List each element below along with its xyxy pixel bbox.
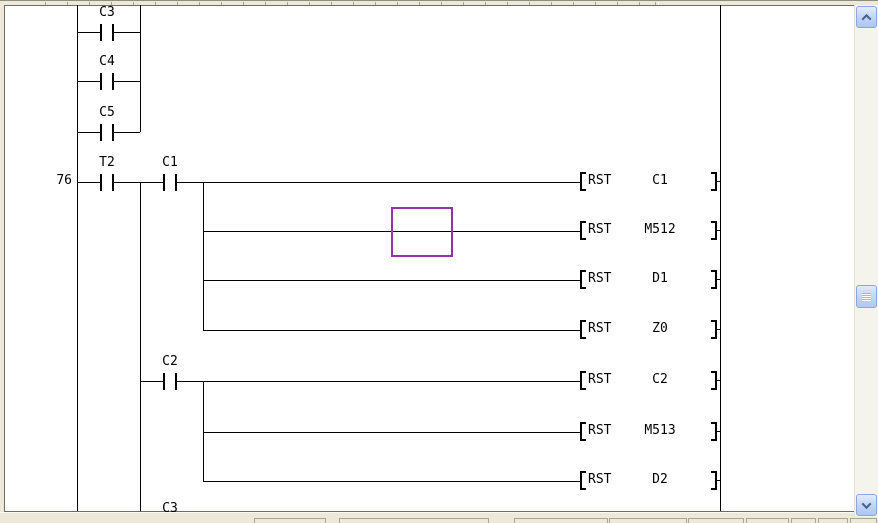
coil-rst-c2[interactable]: RSTC2: [580, 370, 721, 392]
thumb-grip-icon: [862, 293, 871, 301]
coil-rail-stub: [717, 279, 721, 280]
coil-rail-stub: [717, 431, 721, 432]
left-bracket: [580, 221, 586, 240]
instruction-mnemonic: RST: [588, 223, 611, 236]
ladder-diagram: C3C4C5T2C1C2RSTC1RSTM512RSTD1RSTZ0RSTC2R…: [0, 0, 853, 512]
instruction-mnemonic: RST: [588, 272, 611, 285]
status-pane: [514, 518, 608, 523]
status-pane: [850, 518, 877, 523]
contact-c2[interactable]: [163, 373, 177, 390]
left-bracket: [580, 422, 586, 441]
status-pane: [746, 518, 789, 523]
instruction-mnemonic: RST: [588, 373, 611, 386]
coil-rail-stub: [717, 181, 721, 182]
contact-c5[interactable]: [100, 124, 114, 141]
left-bracket: [580, 172, 586, 191]
contact-label-c2: C2: [150, 355, 190, 368]
contact-t2[interactable]: [100, 174, 114, 191]
contact-label-c4: C4: [87, 55, 127, 68]
status-pane: [254, 518, 326, 523]
branch-line: [203, 182, 204, 330]
instruction-operand: C2: [612, 373, 708, 386]
step-number: 76: [40, 174, 72, 187]
rung-wire: [140, 381, 581, 382]
rung-wire: [203, 432, 581, 433]
rung-wire: [203, 481, 581, 482]
status-pane: [818, 518, 848, 523]
coil-rst-m513[interactable]: RSTM513: [580, 421, 721, 443]
instruction-operand: D1: [612, 272, 708, 285]
chevron-up-icon: [862, 13, 872, 23]
branch-line: [203, 381, 204, 481]
status-pane: [688, 518, 744, 523]
status-pane: [609, 518, 687, 523]
contact-c3[interactable]: [100, 24, 114, 41]
rung-wire: [77, 182, 581, 183]
chevron-down-icon: [862, 499, 872, 509]
status-pane: [339, 518, 489, 523]
coil-rst-c1[interactable]: RSTC1: [580, 171, 721, 193]
instruction-mnemonic: RST: [588, 473, 611, 486]
status-pane: [791, 518, 816, 523]
instruction-operand: D2: [612, 473, 708, 486]
left-bracket: [580, 471, 586, 490]
left-bracket: [580, 320, 586, 339]
next-rung-partial-label: C3: [150, 502, 190, 512]
instruction-operand: M513: [612, 424, 708, 437]
contact-label-t2: T2: [87, 156, 127, 169]
screen: C3C4C5T2C1C2RSTC1RSTM512RSTD1RSTZ0RSTC2R…: [0, 0, 878, 523]
instruction-operand: C1: [612, 174, 708, 187]
contact-label-c5: C5: [87, 106, 127, 119]
instruction-operand: Z0: [612, 322, 708, 335]
instruction-mnemonic: RST: [588, 424, 611, 437]
coil-rst-m512[interactable]: RSTM512: [580, 220, 721, 242]
instruction-operand: M512: [612, 223, 708, 236]
scroll-down-button[interactable]: [856, 494, 877, 516]
instruction-mnemonic: RST: [588, 322, 611, 335]
coil-rail-stub: [717, 329, 721, 330]
coil-rail-stub: [717, 230, 721, 231]
coil-rst-d2[interactable]: RSTD2: [580, 470, 721, 492]
coil-rail-stub: [717, 480, 721, 481]
status-bar: [0, 512, 878, 523]
left-bracket: [580, 270, 586, 289]
scrollbar-thumb[interactable]: [856, 285, 877, 308]
contact-label-c1: C1: [150, 156, 190, 169]
instruction-mnemonic: RST: [588, 174, 611, 187]
branch-line: [140, 5, 141, 132]
left-bracket: [580, 371, 586, 390]
coil-rail-stub: [717, 380, 721, 381]
rung-wire: [203, 330, 581, 331]
contact-c4[interactable]: [100, 73, 114, 90]
coil-rst-d1[interactable]: RSTD1: [580, 269, 721, 291]
scroll-up-button[interactable]: [856, 6, 877, 28]
contact-label-c3: C3: [87, 6, 127, 19]
rung-wire: [203, 280, 581, 281]
vertical-scrollbar[interactable]: [854, 5, 878, 517]
coil-rst-z0[interactable]: RSTZ0: [580, 319, 721, 341]
edit-cursor[interactable]: [391, 207, 453, 257]
contact-c1[interactable]: [163, 174, 177, 191]
branch-line: [140, 182, 141, 511]
